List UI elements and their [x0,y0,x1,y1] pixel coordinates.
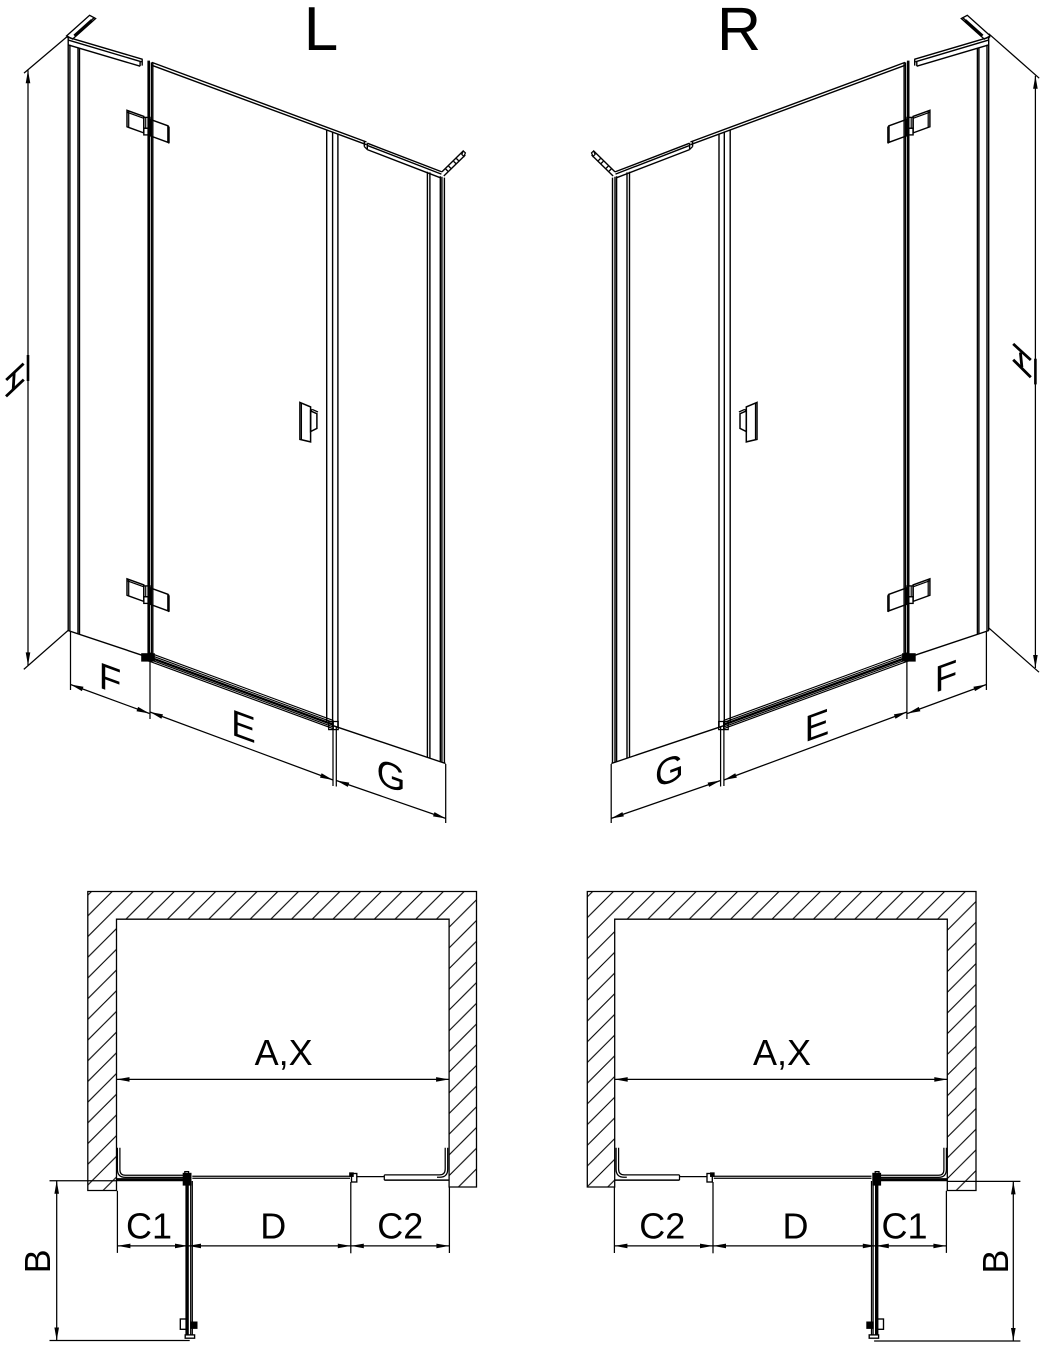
svg-text:C1: C1 [881,1205,927,1246]
svg-text:L: L [304,0,338,64]
svg-text:C1: C1 [126,1205,172,1246]
svg-text:C2: C2 [377,1205,423,1246]
svg-text:D: D [783,1205,809,1246]
svg-text:F: F [99,654,122,704]
svg-text:D: D [260,1205,286,1246]
svg-text:A,X: A,X [753,1032,811,1073]
svg-text:B: B [975,1250,1016,1274]
svg-text:F: F [935,652,958,702]
svg-text:R: R [717,0,761,63]
svg-text:C2: C2 [639,1205,685,1246]
svg-text:B: B [17,1249,58,1273]
svg-text:A,X: A,X [255,1032,313,1073]
